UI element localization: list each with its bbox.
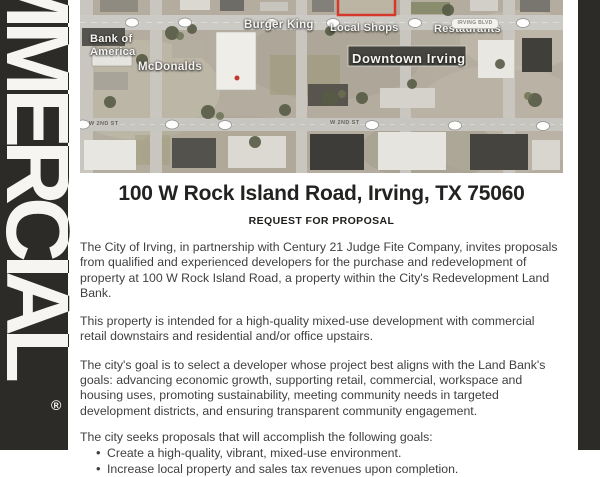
page-title: 100 W Rock Island Road, Irving, TX 75060 [80,182,563,206]
flyer-content: 100 W Rock Island Road, Irving, TX 75060… [80,173,563,477]
map-label-local-shops: Local Shops [330,22,399,34]
goal-item-tax-revenue: Increase local property and sales tax re… [80,462,563,477]
map-label-burger-king: Burger King [244,19,314,31]
map-label-mcdonalds: McDonalds [138,61,202,73]
map-label-downtown-irving: Downtown Irving [352,51,466,66]
page-subtitle: REQUEST FOR PROPOSAL [80,215,563,227]
goal-item-environment: Create a high-quality, vibrant, mixed-us… [80,446,563,462]
right-brand-bar [578,0,600,450]
map-street-label-irving-blvd: IRVING BLVD [451,18,499,29]
goals-intro: The city seeks proposals that will accom… [80,430,563,445]
property-outline [338,0,395,15]
aerial-map: Bank of America McDonalds Burger King Lo… [80,0,563,173]
map-label-bank-of-america: Bank of America [90,33,136,59]
paragraph-city-goal: The city's goal is to select a developer… [80,358,563,419]
paragraph-invitation: The City of Irving, in partnership with … [80,240,563,301]
paragraph-intended-use: This property is intended for a high-qua… [80,314,563,345]
map-street-label-w-2nd-st: W 2ND ST [89,121,118,127]
goals-list: Create a high-quality, vibrant, mixed-us… [80,446,563,477]
map-street-label-w-2nd-st-right: W 2ND ST [330,120,359,126]
registered-trademark-icon: ® [51,397,61,413]
left-brand-bar [0,0,68,450]
